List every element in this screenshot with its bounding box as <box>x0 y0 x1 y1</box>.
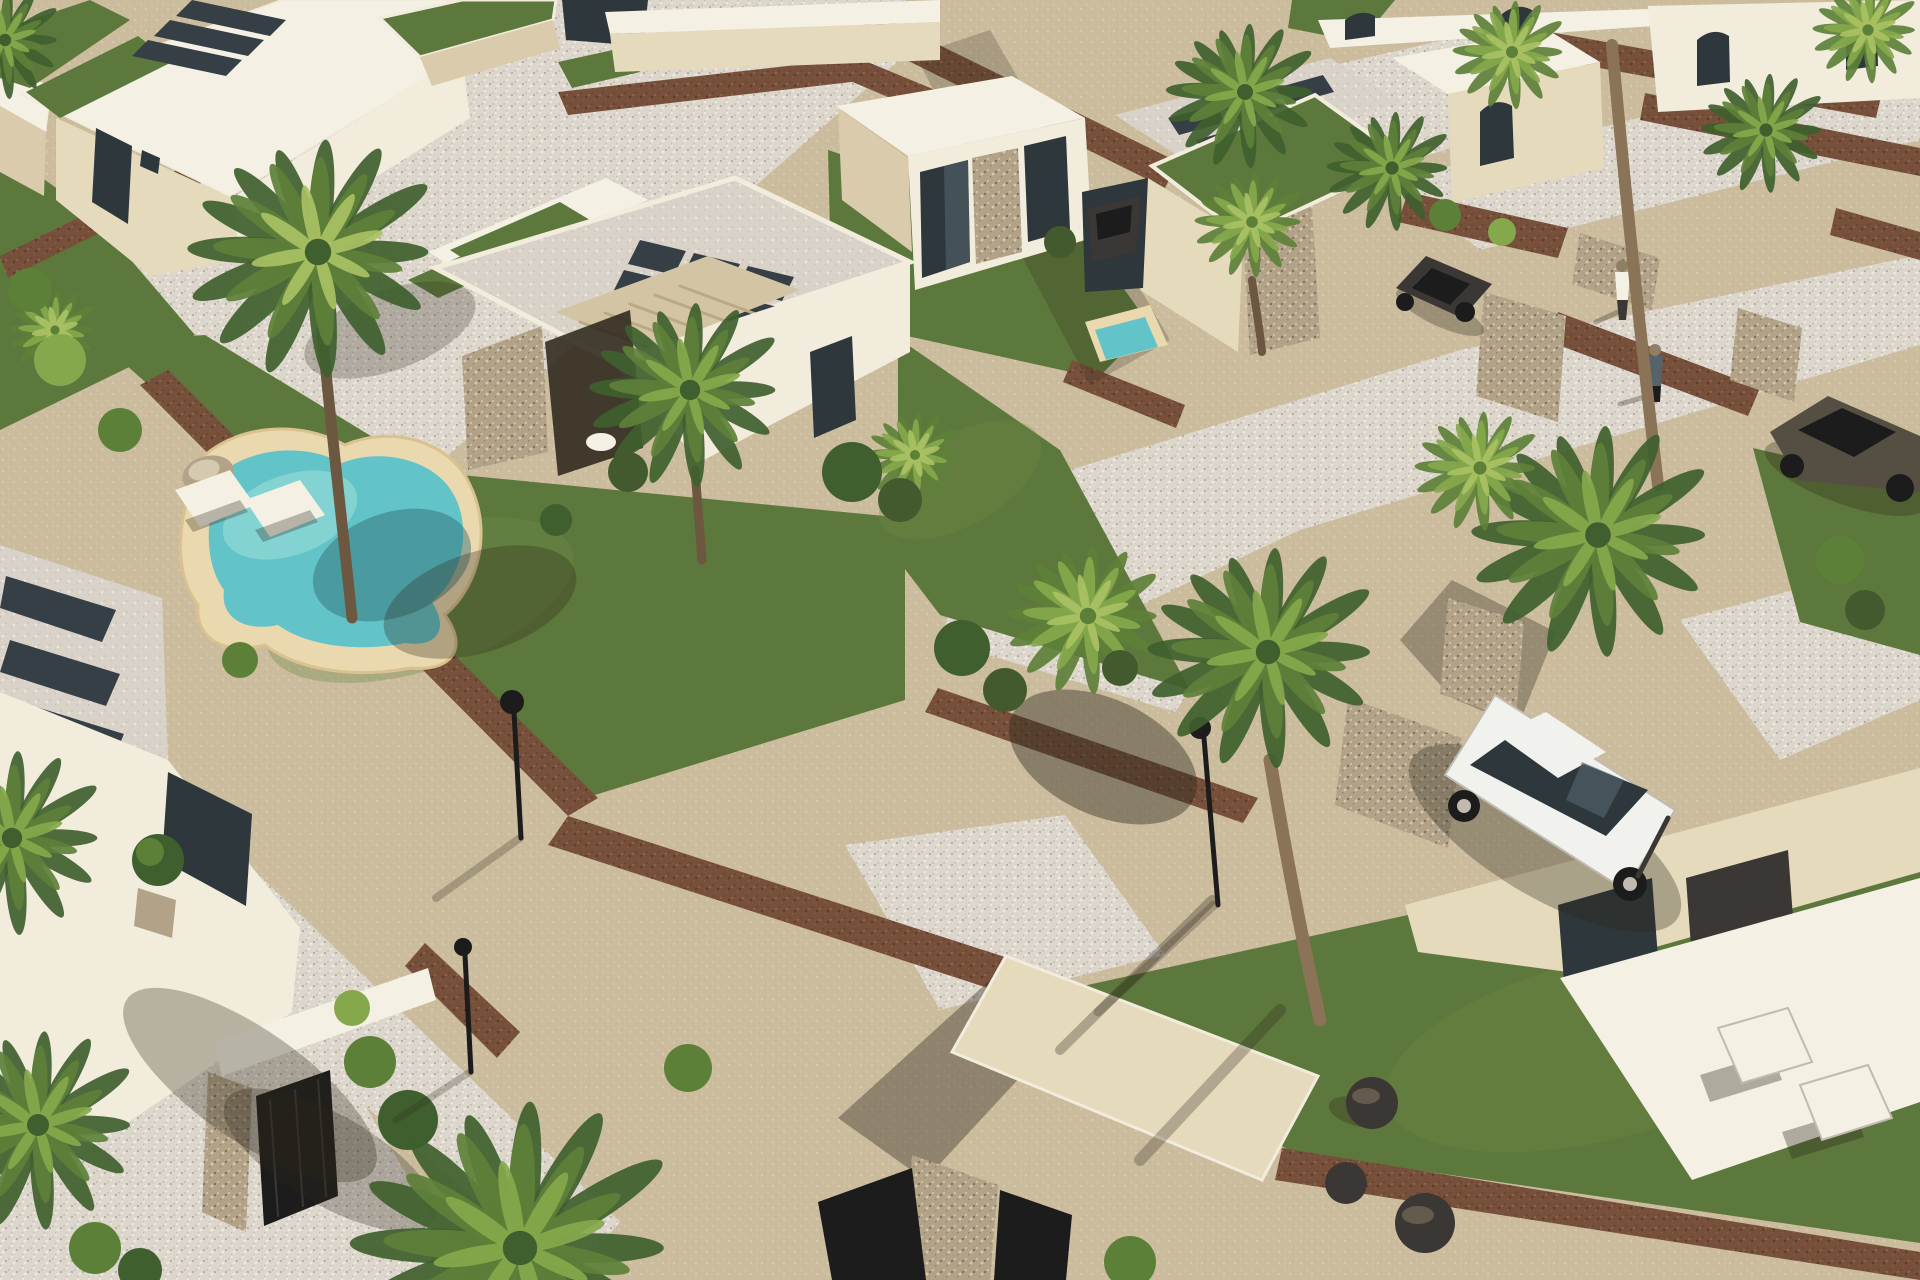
render-canvas <box>0 0 1920 1280</box>
bush-18 <box>1044 226 1076 258</box>
villa-b5-glass-2 <box>1024 136 1070 242</box>
bush-16 <box>34 334 86 386</box>
white-suv-wheel-1-hub <box>1457 799 1471 813</box>
bush-14 <box>222 642 258 678</box>
bush-7 <box>1816 536 1864 584</box>
villa-b5-glass-1-hi <box>944 160 970 270</box>
gate-bl-shrub-1 <box>344 1036 396 1088</box>
dark-car-c-wheel-2 <box>1886 474 1914 502</box>
person-1-body <box>1615 272 1630 300</box>
white-suv-wheel-2-hub <box>1623 877 1637 891</box>
dark-car-b-wheel-1 <box>1396 293 1414 311</box>
bonsai-canopy-hi <box>136 838 164 866</box>
villa-b8-arch-1 <box>1697 32 1730 86</box>
gate-bl-shrub-3 <box>334 990 370 1026</box>
lamp-3-head <box>454 938 472 956</box>
bush-19 <box>664 1044 712 1092</box>
porch-table <box>586 433 616 451</box>
bush-2 <box>983 668 1027 712</box>
lamp-2-head <box>500 690 524 714</box>
pouf-1-hi <box>1352 1088 1380 1104</box>
bush-15 <box>98 408 142 452</box>
pouf-3-hi <box>1402 1206 1434 1224</box>
dark-car-b-wheel-2 <box>1455 302 1475 322</box>
aerial-villa-render <box>0 0 1920 1280</box>
person-1-head <box>1616 260 1628 272</box>
bush-13 <box>1102 650 1138 686</box>
villa-central-door <box>810 336 856 438</box>
person-2-head <box>1649 344 1661 356</box>
bush-8 <box>1845 590 1885 630</box>
dark-car-c-wheel-1 <box>1780 454 1804 478</box>
bush-6 <box>1488 218 1516 246</box>
bush-1 <box>934 620 990 676</box>
villa-b5-stone-pillar <box>972 148 1022 264</box>
villa-b7-arch <box>1480 102 1514 166</box>
pouf-2 <box>1325 1162 1367 1204</box>
bush-5 <box>1429 199 1461 231</box>
bush-11 <box>608 452 648 492</box>
bush-9 <box>69 1222 121 1274</box>
top-arch-1 <box>1345 13 1375 40</box>
bush-17 <box>8 268 52 312</box>
bush-3 <box>822 442 882 502</box>
bush-4 <box>878 478 922 522</box>
bush-12 <box>540 504 572 536</box>
